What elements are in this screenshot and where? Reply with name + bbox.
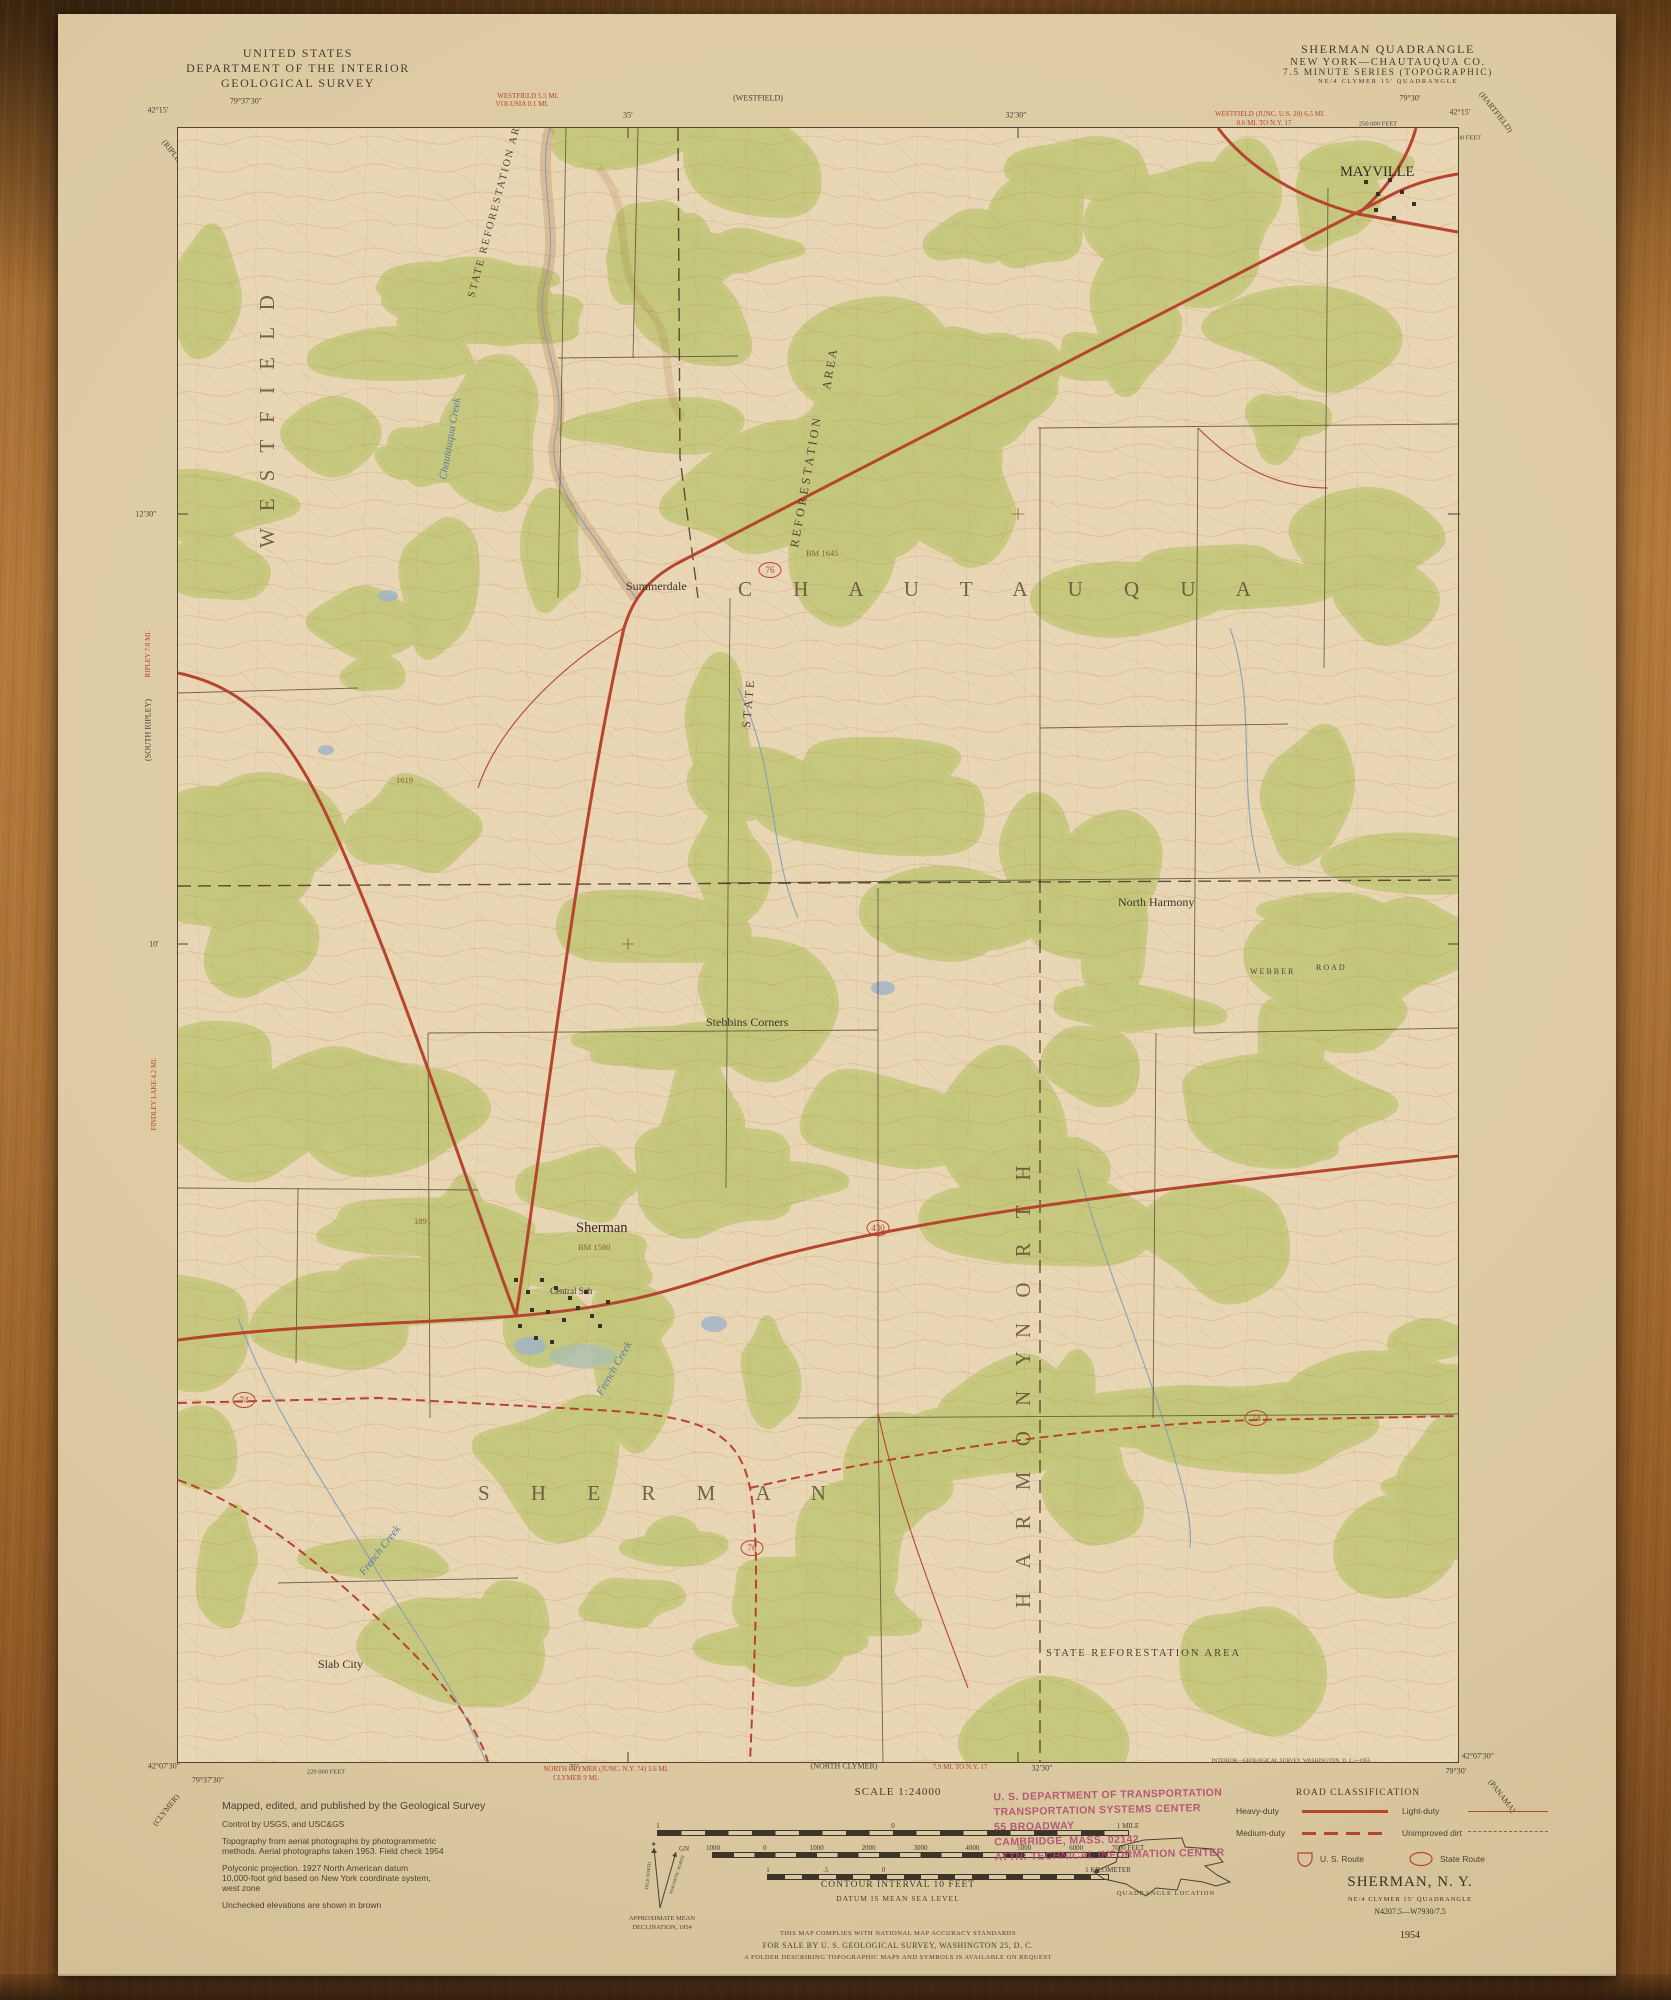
credit-line: Polyconic projection. 1927 North America…: [222, 1863, 485, 1873]
state-route-label: State Route: [1440, 1854, 1485, 1864]
scale-bar-label: 0: [882, 1866, 886, 1874]
margin-label: (HARTFIELD): [1477, 90, 1514, 134]
map-label: S H E R M A N: [478, 1481, 844, 1505]
map-label: Slab City: [318, 1657, 363, 1671]
map-label: 1891: [414, 1216, 431, 1226]
map-label: BM 1645: [806, 548, 838, 558]
quad-series-small: NE/4 CLYMER 15′ QUADRANGLE: [1218, 78, 1558, 85]
margin-label: 42°07′30″: [148, 1762, 180, 1771]
credit-line: methods. Aerial photographs taken 1953. …: [222, 1846, 485, 1856]
map-label: Summerdale: [626, 579, 687, 593]
scale-bar-label: .5: [823, 1866, 828, 1874]
route-number: 76: [748, 1543, 758, 1553]
map-label: North Harmony: [1118, 895, 1194, 909]
route-number: 430: [871, 1223, 885, 1233]
margin-label: 79°37′30″: [230, 97, 262, 106]
quadrangle-location-caption: QUADRANGLE LOCATION: [1086, 1890, 1246, 1897]
margin-label: 250 000 FEET: [1359, 121, 1397, 128]
scale-bar-label: 0: [763, 1844, 767, 1852]
sheet-series: NE/4 CLYMER 15′ QUADRANGLE: [1260, 1896, 1560, 1903]
credits-block: Mapped, edited, and published by the Geo…: [222, 1800, 485, 1910]
folder-note: A FOLDER DESCRIBING TOPOGRAPHIC MAPS AND…: [618, 1954, 1178, 1961]
scale-bar-label: 1000: [810, 1844, 824, 1852]
map-label: MAYVILLE: [1340, 164, 1415, 180]
road-classification-title: ROAD CLASSIFICATION: [1208, 1788, 1508, 1798]
margin-label: (CLYMER): [151, 1792, 181, 1827]
scale-bar-label: 2000: [862, 1844, 876, 1852]
scale-bar-label: 1: [656, 1822, 660, 1830]
map-label: C H A U T A U Q U A: [738, 577, 1269, 601]
map-label: H A R M O N Y: [1011, 1341, 1035, 1608]
margin-label: 35′: [623, 111, 633, 120]
quad-title: SHERMAN QUADRANGLE: [1218, 42, 1558, 57]
credit-line: Control by USGS, and USC&GS: [222, 1819, 485, 1829]
margin-label: 12′30″: [135, 510, 156, 519]
sheet-name: SHERMAN, N. Y.: [1260, 1874, 1560, 1891]
margin-road-note: NORTH CLYMER (JUNC. N.Y. 74) 3.6 MI.: [543, 1765, 668, 1773]
margin-label: 79°30′: [1446, 1767, 1467, 1776]
map-label: WEBBER: [1250, 967, 1295, 976]
credit-line: 10,000-foot grid based on New York coord…: [222, 1873, 485, 1883]
scale-bar: 1.501 KILOMETER: [768, 1868, 1108, 1878]
margin-label: 32′30″: [1031, 1764, 1052, 1773]
margin-road-note: WESTFIELD (JUNC. U.S. 20) 6.5 MI.: [1215, 110, 1325, 118]
route-number: 76: [766, 565, 776, 575]
margin-label: 79°30′: [1400, 94, 1421, 103]
credit-line: Topography from aerial photographs by ph…: [222, 1836, 485, 1846]
map-neatline-frame: 76430747476W E S T F I E L DC H A U T A …: [178, 128, 1458, 1762]
topographic-map: 76430747476W E S T F I E L DC H A U T A …: [178, 128, 1458, 1762]
margin-label: 42°07′30″: [1462, 1752, 1494, 1761]
agency-line: GEOLOGICAL SURVEY: [148, 76, 448, 91]
scale-bar-label: 4000: [965, 1844, 979, 1852]
road-class-heavy-label: Heavy-duty: [1236, 1806, 1279, 1816]
scale-bar-label: 3000: [914, 1844, 928, 1852]
sale-note: FOR SALE BY U. S. GEOLOGICAL SURVEY, WAS…: [618, 1941, 1178, 1950]
accuracy-note: THIS MAP COMPLIES WITH NATIONAL MAP ACCU…: [618, 1930, 1178, 1937]
scale-bar-label: 0: [891, 1822, 895, 1830]
route-number: 74: [1252, 1413, 1262, 1423]
route-number: 74: [240, 1395, 250, 1405]
credit-line: Unchecked elevations are shown in brown: [222, 1900, 485, 1910]
margin-road-note: 7.9 MI. TO N.Y. 17: [933, 1763, 988, 1771]
margin-label: (SOUTH RIPLEY): [144, 699, 153, 761]
scale-bar-rule: [768, 1875, 1108, 1879]
margin-label: 32′30″: [1005, 111, 1026, 120]
map-label: 1619: [396, 775, 413, 785]
state-route-oval-icon: [1408, 1851, 1434, 1867]
sheet-code: N4207.5—W7930/7.5: [1260, 1907, 1560, 1916]
medium-duty-road-sample: [1302, 1832, 1388, 1835]
us-route-shield-icon: [1296, 1850, 1314, 1867]
margin-label: 42°15′: [148, 106, 169, 115]
topo-map-sheet: UNITED STATES DEPARTMENT OF THE INTERIOR…: [58, 14, 1616, 1976]
map-label: N O R T H: [1011, 1155, 1035, 1338]
agency-line: DEPARTMENT OF THE INTERIOR: [148, 61, 448, 76]
quad-subtitle: NEW YORK—CHAUTAUQUA CO.: [1218, 57, 1558, 68]
wooden-table-surface: UNITED STATES DEPARTMENT OF THE INTERIOR…: [0, 0, 1671, 2000]
map-label: W E S T F I E L D: [255, 289, 279, 548]
credit-line: Mapped, edited, and published by the Geo…: [222, 1800, 485, 1812]
road-class-dirt-label: Unimproved dirt: [1402, 1828, 1462, 1838]
margin-road-note: VOLUSIA 0.1 MI.: [496, 100, 549, 108]
map-label: STATE REFORESTATION AREA: [1046, 1648, 1241, 1659]
margin-label: (NORTH CLYMER): [811, 1762, 878, 1771]
scale-bar-label: 1: [766, 1866, 770, 1874]
map-label: ROAD: [1316, 963, 1347, 972]
scale-bar-label: 1000: [706, 1844, 720, 1852]
map-label: BM 1580: [578, 1242, 610, 1252]
margin-road-note: WESTFIELD 5.5 MI.: [497, 92, 558, 100]
header-title-block: SHERMAN QUADRANGLE NEW YORK—CHAUTAUQUA C…: [1218, 42, 1558, 85]
declination-caption-line: APPROXIMATE MEAN: [582, 1914, 742, 1923]
road-class-light-label: Light-duty: [1402, 1806, 1439, 1816]
road-class-medium-label: Medium-duty: [1236, 1828, 1285, 1838]
map-label: Stebbins Corners: [706, 1015, 789, 1029]
margin-label: 220 000 FEET: [307, 1769, 345, 1776]
margin-label: 10′: [149, 940, 159, 949]
margin-label: 79°37′30″: [192, 1776, 224, 1785]
quad-series: 7.5 MINUTE SERIES (TOPOGRAPHIC): [1218, 68, 1558, 78]
credit-line: west zone: [222, 1883, 485, 1893]
margin-road-note: RIPLEY 7.8 MI.: [144, 631, 152, 678]
map-label: Sherman: [576, 1220, 628, 1236]
margin-label: 42°15′: [1450, 108, 1471, 117]
margin-road-note: FINDLEY LAKE 4.2 MI.: [150, 1058, 158, 1131]
light-duty-road-sample: [1468, 1811, 1548, 1812]
margin-road-note: CLYMER 9 MI.: [553, 1774, 599, 1782]
heavy-duty-road-sample: [1302, 1810, 1388, 1813]
interior-credit: INTERIOR—GEOLOGICAL SURVEY, WASHINGTON, …: [1166, 1758, 1416, 1764]
margin-road-note: 0.6 MI. TO N.Y. 17: [1237, 119, 1292, 127]
sheet-year: 1954: [1260, 1930, 1560, 1941]
header-agency-block: UNITED STATES DEPARTMENT OF THE INTERIOR…: [148, 46, 448, 91]
map-label: Central Sch: [550, 1286, 593, 1296]
unimproved-dirt-sample: [1468, 1831, 1548, 1832]
us-route-label: U. S. Route: [1320, 1854, 1364, 1864]
margin-label: (WESTFIELD): [733, 94, 783, 103]
agency-line: UNITED STATES: [148, 46, 448, 61]
